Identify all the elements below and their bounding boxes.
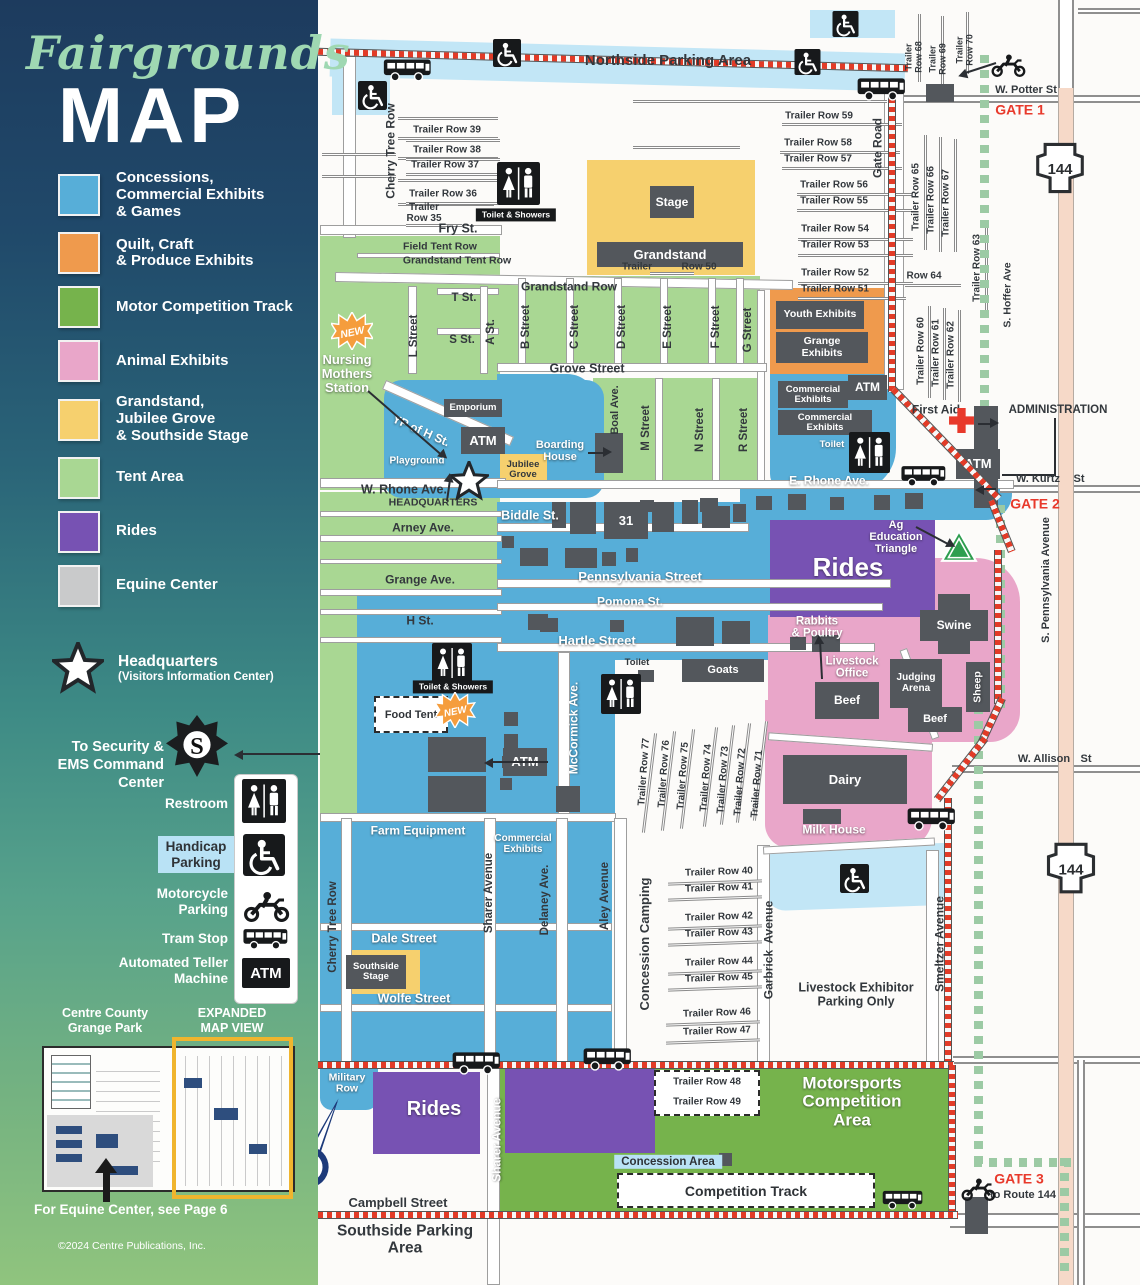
- label-southside-parking-area: Southside Parking Area: [337, 1223, 473, 1256]
- label-trailer-row-55: Trailer Row 55: [800, 197, 868, 208]
- legend-swatch: [58, 565, 100, 607]
- building: [528, 614, 548, 630]
- arrow-icon: [488, 761, 548, 763]
- label-trailer-row-38: Trailer Row 38: [413, 146, 481, 157]
- label-milk-house: Milk House: [802, 824, 865, 837]
- road: [1078, 8, 1140, 14]
- street: [614, 818, 627, 1064]
- label-d-street: D Street: [616, 305, 628, 349]
- label-grange-ave: Grange Ave.: [385, 574, 455, 587]
- route-144-keystone: [1035, 142, 1085, 194]
- building: [733, 504, 746, 522]
- legend-swatch: [58, 340, 100, 382]
- handicap-parking-icon: [832, 11, 859, 37]
- first-aid-icon: [948, 406, 975, 435]
- building: [500, 778, 512, 790]
- handicap-parking-icon: [839, 864, 870, 893]
- building: [520, 548, 548, 566]
- label-trailer-row-61: Trailer Row 61: [932, 319, 943, 387]
- boundary-fence: [994, 550, 1002, 704]
- dashed-box-competition-track: Competition Track: [617, 1173, 875, 1208]
- building-beef: Beef: [908, 707, 962, 732]
- label-e-rhone-ave: E. Rhone Ave.: [789, 475, 869, 488]
- label-trailer-row-63: Trailer Row 63: [973, 234, 984, 302]
- legend-swatch: [58, 174, 100, 216]
- street: [556, 818, 568, 1064]
- legend-label: Quilt, Craft & Produce Exhibits: [116, 237, 254, 271]
- legend-label: Tent Area: [116, 469, 184, 486]
- amenity-label-automated-teller: Automated Teller Machine: [56, 955, 228, 986]
- label-toilet: Toilet: [625, 658, 650, 668]
- motorcycle-icon: [242, 888, 290, 924]
- handicap-parking-icon: [492, 39, 522, 67]
- label-to-route-144: to Route 144: [990, 1190, 1056, 1202]
- label-pennsylvania-street: Pennsylvania Street: [578, 570, 702, 584]
- legend-swatch: [58, 286, 100, 328]
- building: [602, 552, 616, 566]
- label-hartle-street: Hartle Street: [558, 634, 635, 648]
- label-trailer-row-47: Trailer Row 47: [683, 1025, 751, 1038]
- label-trailer-row-41: Trailer Row 41: [685, 882, 753, 895]
- building-swine: Swine: [920, 610, 988, 641]
- legend-item-equine-center: Equine Center: [58, 565, 310, 607]
- label-farm-equipment: Farm Equipment: [371, 825, 466, 838]
- restroom-icon: [242, 779, 286, 823]
- building: [682, 500, 698, 524]
- label-fry-st: Fry St.: [439, 222, 478, 236]
- legend-label: Rides: [116, 523, 157, 540]
- street: [497, 363, 767, 372]
- row-line: [668, 895, 762, 901]
- street: [320, 559, 502, 564]
- label-trailer-row-68: Trailer Row 68: [904, 41, 923, 73]
- label-e-street: E Street: [662, 305, 674, 348]
- label-rides: Rides: [813, 553, 884, 581]
- arrow-icon: [978, 423, 995, 425]
- label-pomona-st: Pomona St.: [597, 596, 663, 609]
- building-atm: ATM: [461, 427, 505, 454]
- street: [497, 603, 883, 611]
- label-trailer-row-54: Trailer Row 54: [801, 225, 869, 236]
- building: [626, 548, 638, 562]
- sidebar: Fairgrounds MAP Concessions, Commercial …: [0, 0, 318, 1285]
- label-trailer: Trailer: [622, 263, 652, 274]
- tram-stop-icon: [581, 1044, 637, 1072]
- label-sharer-avenue: Sharer Avenue: [491, 1098, 504, 1182]
- row-line: [633, 146, 740, 149]
- label-trailer-row-72: Trailer Row 72: [733, 748, 749, 816]
- label-sheep: Sheep: [972, 671, 983, 703]
- label-garbrick-avenue: Garbrick Avenue: [763, 901, 776, 999]
- road: [1077, 1060, 1085, 1285]
- headquarters-label: Headquarters: [118, 653, 274, 672]
- label-s-pennsylvania-avenue: S. Pennsylvania Avenue: [1041, 517, 1053, 643]
- legend-item-motor-competition-track: Motor Competition Track: [58, 286, 310, 328]
- label-trailer-row-45: Trailer Row 45: [685, 972, 753, 985]
- label-trailer-row-66: Trailer Row 66: [927, 166, 938, 234]
- equine-center-note: For Equine Center, see Page 6: [34, 1202, 228, 1217]
- legend-headquarters: Headquarters (Visitors Information Cente…: [52, 642, 274, 694]
- row-line: [398, 117, 498, 120]
- label-gate-2: GATE 2: [1010, 496, 1060, 511]
- atm-icon: ATM: [242, 958, 290, 988]
- label-trailer-row-43: Trailer Row 43: [685, 927, 753, 940]
- boundary-fence: [318, 1211, 958, 1219]
- building: [700, 498, 718, 512]
- label-ag-education-triangle: Ag Education Triangle: [869, 520, 922, 556]
- label-trailer-row-39: Trailer Row 39: [413, 126, 481, 137]
- label-trailer-row-48: Trailer Row 48: [673, 1078, 741, 1089]
- building-dairy: Dairy: [783, 755, 907, 804]
- label-w-allison: W. Allison: [1018, 754, 1070, 766]
- label-t-st: T St.: [452, 292, 477, 304]
- label-jubilee-grove: Jubilee Grove: [507, 460, 540, 481]
- label-arney-ave: Arney Ave.: [392, 522, 454, 535]
- building-stage: Stage: [650, 186, 694, 218]
- label-toilet-showers: Toilet & Showers: [476, 208, 556, 221]
- building-atm: ATM: [848, 375, 887, 400]
- restroom-icon: [600, 674, 642, 714]
- label-concession-camping: Concession Camping: [638, 878, 652, 1011]
- legend-item-quilt-craft: Quilt, Craft & Produce Exhibits: [58, 232, 310, 274]
- building: [640, 500, 654, 512]
- label-c-street: C Street: [569, 305, 581, 349]
- label-dale-street: Dale Street: [371, 932, 436, 946]
- legend-label: Grandstand, Jubilee Grove & Southside St…: [116, 394, 249, 444]
- label-s-st: S St.: [449, 334, 475, 346]
- row-line: [905, 284, 961, 287]
- fairgrounds-map-page: S NEW 144 n: [0, 0, 1140, 1285]
- label-trailer-row-65: Trailer Row 65: [912, 163, 923, 231]
- boundary-fence: [948, 1065, 956, 1219]
- label-cherry-tree-row: Cherry Tree Row: [385, 103, 398, 198]
- label-n-street: N Street: [694, 408, 706, 452]
- row-line: [398, 179, 498, 182]
- building: [905, 493, 923, 509]
- legend-item-animal-exhibits: Animal Exhibits: [58, 340, 310, 382]
- label-boarding-house: Boarding House: [536, 440, 584, 464]
- building: [756, 496, 772, 510]
- walking-path: [974, 706, 983, 1164]
- street: [320, 813, 616, 822]
- street: [320, 535, 502, 542]
- tram-stop-icon: [898, 462, 952, 488]
- inset-map-detail: [96, 1134, 118, 1148]
- row-line: [633, 100, 887, 103]
- zone-tent-west-strip: [320, 594, 358, 814]
- label-b-street: B Street: [520, 305, 532, 349]
- inset-title-right: EXPANDED MAP VIEW: [172, 1006, 292, 1036]
- tram-stop-icon: [383, 55, 435, 83]
- security-badge-icon: [166, 714, 228, 778]
- label-a-st: A St.: [485, 319, 497, 345]
- street: [757, 290, 765, 488]
- label-grandstand-row: Grandstand Row: [521, 281, 617, 294]
- restroom-icon: [497, 162, 540, 205]
- tram-stop-icon: [450, 1048, 506, 1076]
- headquarters-sublabel: (Visitors Information Center): [118, 671, 274, 683]
- building-beef: Beef: [815, 682, 879, 719]
- row-line: [668, 940, 762, 946]
- label-military-row: Military Row: [329, 1073, 366, 1096]
- label-campbell-street: Campbell Street: [349, 1196, 448, 1210]
- label-trailer-row-57: Trailer Row 57: [784, 155, 852, 166]
- label-w-potter-st: W. Potter St: [995, 85, 1057, 97]
- label-trailer-row-42: Trailer Row 42: [685, 911, 753, 924]
- row-line: [958, 310, 961, 402]
- label-livestock-exhibitor-parking-only: Livestock Exhibitor Parking Only: [798, 982, 913, 1009]
- label-wolfe-street: Wolfe Street: [378, 992, 451, 1006]
- building: [652, 502, 674, 532]
- label-trailer-row-70: Trailer Row 70: [955, 34, 974, 66]
- legend-label: Animal Exhibits: [116, 353, 229, 370]
- building-goats: Goats: [682, 659, 764, 682]
- building-grange-exhibits: Grange Exhibits: [776, 332, 868, 363]
- tram-stop-icon: [856, 74, 910, 102]
- label-trailer-row-44: Trailer Row 44: [685, 956, 753, 969]
- walking-path: [974, 1158, 1071, 1167]
- label-g-street: G Street: [742, 308, 754, 353]
- legend-label: Motor Competition Track: [116, 299, 293, 316]
- label-toilet: Toilet: [820, 440, 845, 450]
- label-m-street: M Street: [640, 405, 652, 450]
- amenity-label-motorcycle: Motorcycle Parking: [56, 886, 228, 917]
- security-label: To Security & EMS Command Center: [14, 738, 164, 792]
- legend-item-grandstand: Grandstand, Jubilee Grove & Southside St…: [58, 394, 310, 444]
- legend-swatch: [58, 399, 100, 441]
- label-motorsports-competition-area: Motorsports Competition Area: [802, 1074, 901, 1129]
- amenity-label-handicap: Handicap Parking: [158, 836, 234, 873]
- headquarters-star-icon: [52, 642, 104, 694]
- headquarters-star-icon: [449, 461, 489, 501]
- restroom-icon: [849, 431, 890, 474]
- label-northside-parking-area: Northside Parking Area: [585, 53, 751, 69]
- label-biddle-st: Biddle St.: [501, 509, 559, 523]
- label-trailer-row-60: Trailer Row 60: [917, 317, 928, 385]
- legend-item-tent-area: Tent Area: [58, 457, 310, 499]
- building-youth-exhibits: Youth Exhibits: [776, 301, 864, 329]
- label-mccormick-ave: McCormick Ave.: [568, 682, 581, 774]
- label-trailer-row-75: Trailer Row 75: [676, 742, 692, 810]
- label-nursing-mothers-station: Nursing Mothers Station: [322, 353, 373, 395]
- route-144-keystone: [1046, 840, 1096, 896]
- label-administration: ADMINISTRATION: [1009, 404, 1108, 416]
- legend-swatch: [58, 457, 100, 499]
- street: [655, 378, 663, 487]
- inset-map-legend: [51, 1055, 91, 1109]
- inset-map-detail: [56, 1126, 82, 1134]
- zone-south-grid: [320, 818, 612, 1064]
- arrow-icon: [588, 452, 608, 454]
- tram-stop-icon: [882, 1186, 926, 1212]
- label-st: St: [1074, 474, 1085, 486]
- label-commercial-exhibits: Commercial Exhibits: [494, 834, 551, 856]
- label-h-st: H St.: [406, 615, 433, 628]
- label-trailer-row-46: Trailer Row 46: [683, 1007, 751, 1020]
- street: [320, 1004, 612, 1012]
- row-line: [954, 139, 957, 252]
- road: [1058, 0, 1074, 88]
- label-cherry-tree-row: Cherry Tree Row: [327, 881, 339, 972]
- label-concession-area: Concession Area: [614, 1155, 722, 1169]
- building: [428, 776, 486, 812]
- legend-swatch: [58, 232, 100, 274]
- label-gate-road: Gate Road: [872, 118, 885, 178]
- label-rides: Rides: [407, 1099, 461, 1121]
- label-trailer-row-58: Trailer Row 58: [784, 139, 852, 150]
- label-trailer-row-69: Trailer Row 69: [928, 43, 947, 75]
- legend-label: Equine Center: [116, 577, 218, 594]
- restroom-icon: [432, 643, 472, 683]
- label-boal-ave: Boal Ave.: [610, 385, 622, 434]
- building: [556, 786, 580, 812]
- building: [428, 737, 486, 772]
- label-trailer-row-52: Trailer Row 52: [801, 269, 869, 280]
- handicap-parking-icon: [357, 81, 388, 110]
- label-st: St: [1081, 754, 1092, 766]
- label-row-64: Row 64: [906, 272, 941, 283]
- label-smeltzer-avenue: Smeltzer Avenue: [934, 896, 947, 992]
- street: [343, 56, 356, 238]
- label-w-rhone-ave: W. Rhone Ave.: [361, 483, 447, 497]
- legend-list: Concessions, Commercial Exhibits & Games…: [58, 170, 310, 619]
- building: [570, 502, 596, 534]
- label-trailer-row-67: Trailer Row 67: [942, 169, 953, 237]
- building: [504, 712, 518, 726]
- arrow-icon: [979, 488, 996, 490]
- inset-expanded-view-outline: [172, 1037, 293, 1199]
- handicap-parking-icon: [242, 834, 286, 876]
- label-f-street: F Street: [710, 306, 722, 349]
- handicap-parking-icon: [794, 49, 821, 75]
- label-trailer-row-51: Trailer Row 51: [801, 285, 869, 296]
- arrow-icon: [238, 753, 320, 755]
- label-trailer-row-59: Trailer Row 59: [785, 112, 853, 123]
- street: [320, 923, 612, 931]
- boundary-fence: [888, 80, 896, 392]
- building-judging-arena: Judging Arena: [890, 659, 942, 708]
- callout-line: [1054, 418, 1056, 476]
- route-144-road: [1058, 88, 1074, 1285]
- label-row-50: Row 50: [681, 263, 716, 274]
- building: [565, 548, 597, 568]
- label-trailer-row-53: Trailer Row 53: [801, 241, 869, 252]
- building: [610, 620, 624, 632]
- label-sharer-avenue: Sharer Avenue: [483, 853, 495, 933]
- label-gate-3: GATE 3: [994, 1171, 1044, 1186]
- copyright: ©2024 Centre Publications, Inc.: [58, 1240, 206, 1252]
- label-gate-1: GATE 1: [995, 102, 1045, 117]
- building: [676, 617, 714, 646]
- label-s-hoffer-ave: S. Hoffer Ave: [1002, 262, 1013, 327]
- walking-path: [1060, 1158, 1069, 1274]
- motorcycle-parking-icon: [960, 1174, 996, 1204]
- legend-label: Concessions, Commercial Exhibits & Games: [116, 170, 264, 220]
- label-trailer-row-35: Trailer Row 35: [406, 203, 441, 225]
- building: [722, 621, 750, 644]
- building: [504, 734, 518, 748]
- building-grandstand: Grandstand: [597, 242, 743, 267]
- street: [320, 511, 502, 517]
- label-trailer-row-62: Trailer Row 62: [947, 321, 958, 389]
- label-playground: Playground: [389, 457, 444, 468]
- label-grandstand-tent-row: Grandstand Tent Row: [403, 255, 511, 266]
- zone-rides-se: [505, 1068, 655, 1153]
- new-burst-icon: [434, 692, 476, 728]
- tram-bus-icon: [242, 925, 292, 951]
- label-field-tent-row: Field Tent Row: [403, 241, 477, 252]
- label-trailer-row-56: Trailer Row 56: [800, 181, 868, 192]
- label-aley-avenue: Aley Avenue: [599, 862, 611, 930]
- tram-stop-icon: [904, 804, 962, 832]
- label-l-street: L Street: [408, 315, 420, 358]
- label-delaney-ave: Delaney Ave.: [539, 865, 551, 936]
- row-line: [666, 1038, 760, 1044]
- street: [320, 589, 502, 596]
- label-grove-street: Grove Street: [549, 362, 624, 376]
- label-trailer-row-40: Trailer Row 40: [685, 866, 753, 879]
- amenity-label-restroom: Restroom: [56, 796, 228, 812]
- building-commercial-exhibits: Commercial Exhibits: [778, 381, 848, 408]
- inset-title-left: Centre County Grange Park: [35, 1006, 175, 1036]
- inset-map-detail: [56, 1140, 82, 1148]
- label-trailer-row-37: Trailer Row 37: [411, 161, 479, 172]
- row-line: [406, 173, 500, 176]
- label-trailer-row-49: Trailer Row 49: [673, 1098, 741, 1109]
- legend-item-rides: Rides: [58, 511, 310, 553]
- legend-swatch: [58, 511, 100, 553]
- label-trailer-row-74: Trailer Row 74: [699, 744, 715, 812]
- row-line: [406, 139, 500, 142]
- building: [502, 536, 514, 548]
- amenity-label-tram-stop: Tram Stop: [56, 931, 228, 947]
- motorcycle-parking-icon: [990, 50, 1026, 80]
- label-livestock-office: Livestock Office: [825, 656, 878, 681]
- inset-map-detail: [56, 1154, 82, 1162]
- street: [712, 378, 720, 487]
- building-emporium: Emporium: [444, 399, 502, 417]
- building-southside-stage: Southside Stage: [346, 955, 406, 989]
- building: [788, 494, 806, 510]
- label-trailer-row-71: Trailer Row 71: [750, 750, 766, 818]
- building: [830, 497, 844, 510]
- new-burst-icon: [331, 312, 373, 350]
- building: [926, 84, 954, 102]
- street: [341, 818, 352, 1064]
- legend-item-concessions: Concessions, Commercial Exhibits & Games: [58, 170, 310, 220]
- building: [874, 495, 890, 510]
- label-trailer-row-73: Trailer Row 73: [716, 746, 732, 814]
- title-map: MAP: [58, 70, 246, 161]
- label-trailer-row-36: Trailer Row 36: [409, 190, 477, 201]
- label-r-street: R Street: [738, 408, 750, 452]
- row-line: [668, 985, 762, 991]
- label-w-kurtz: W. Kurtz: [1016, 474, 1060, 486]
- street: [320, 637, 502, 643]
